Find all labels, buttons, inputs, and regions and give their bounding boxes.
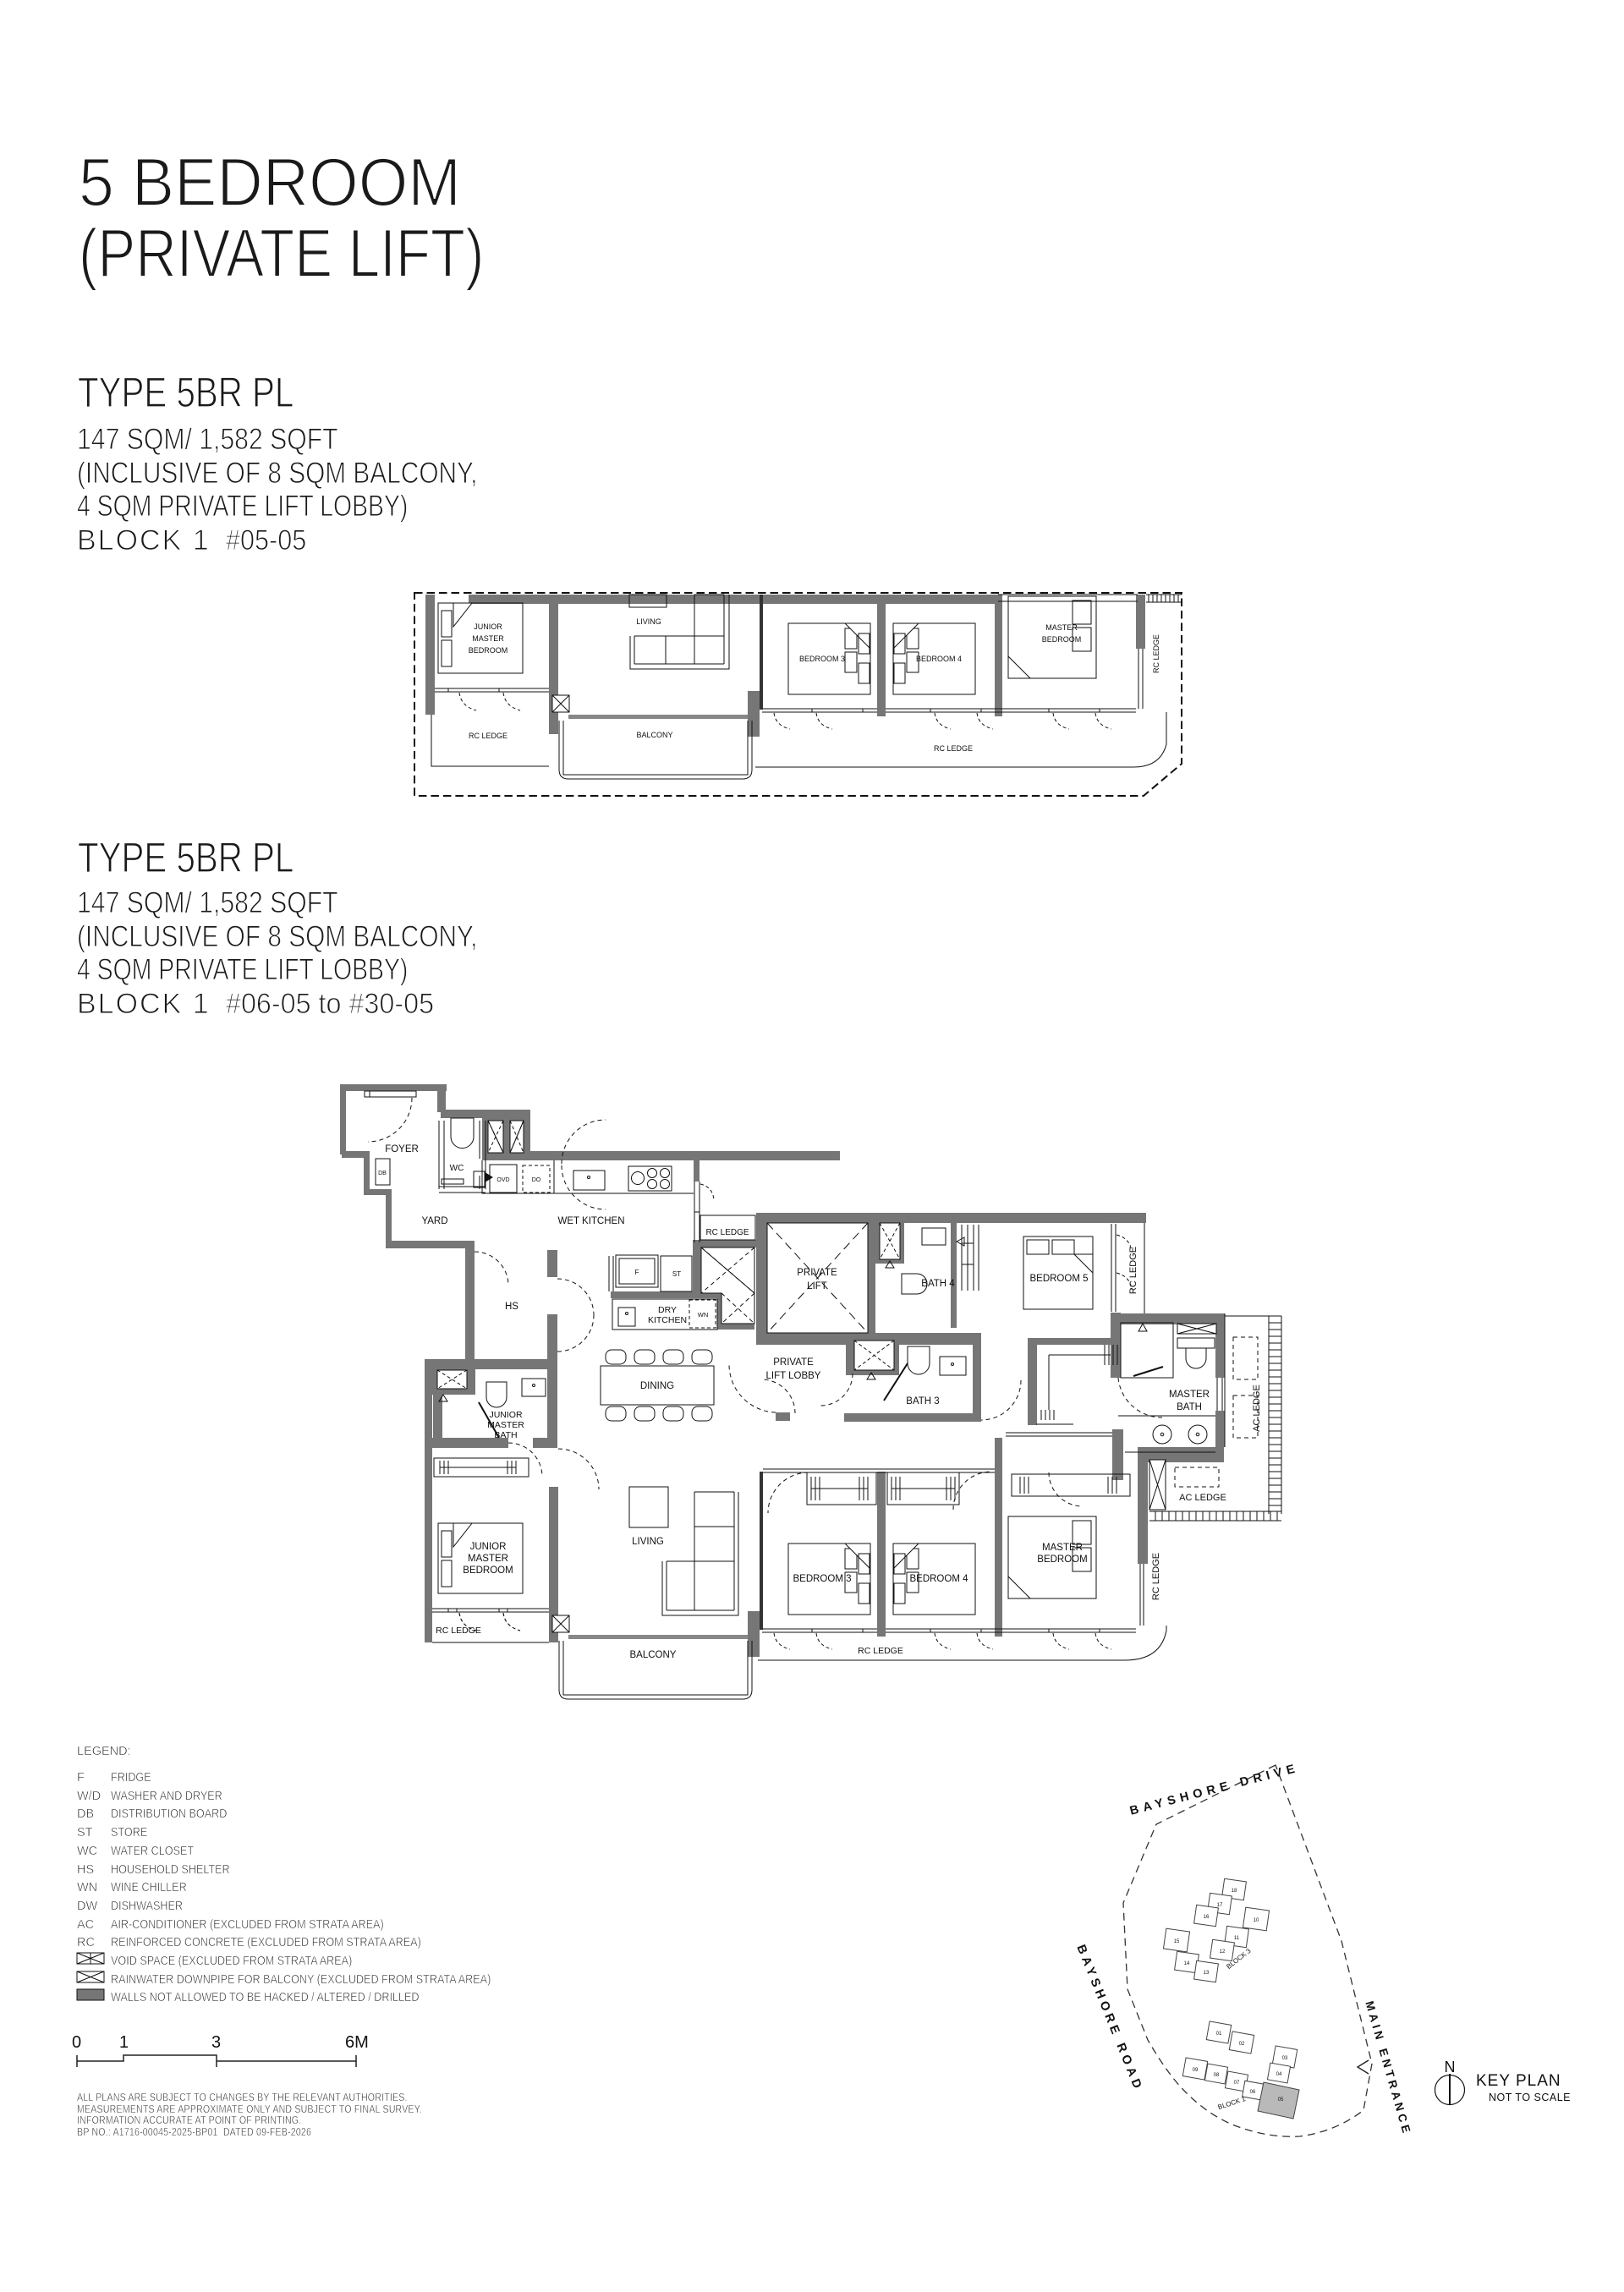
svg-text:17: 17 xyxy=(1217,1903,1223,1908)
svg-text:DRY: DRY xyxy=(658,1305,677,1315)
svg-text:PRIVATE: PRIVATE xyxy=(773,1357,814,1368)
svg-text:JUNIOR: JUNIOR xyxy=(474,622,502,631)
svg-text:BEDROOM 5: BEDROOM 5 xyxy=(1029,1274,1088,1284)
svg-text:05: 05 xyxy=(1278,2097,1284,2103)
svg-text:04: 04 xyxy=(1276,2072,1282,2077)
svg-text:06: 06 xyxy=(1250,2090,1256,2095)
svg-text:FOYER: FOYER xyxy=(385,1144,419,1154)
svg-text:BATH 3: BATH 3 xyxy=(906,1396,939,1406)
svg-text:RC LEDGE: RC LEDGE xyxy=(1128,1247,1138,1294)
svg-text:N: N xyxy=(1445,2059,1456,2075)
svg-text:WN: WN xyxy=(698,1311,709,1319)
svg-text:BLOCK 1: BLOCK 1 xyxy=(1217,2095,1247,2111)
svg-text:JUNIOR: JUNIOR xyxy=(470,1542,507,1552)
svg-text:BEDROOM: BEDROOM xyxy=(463,1565,513,1576)
svg-text:07: 07 xyxy=(1234,2081,1240,2086)
svg-text:BEDROOM: BEDROOM xyxy=(1042,635,1082,644)
svg-text:DB: DB xyxy=(378,1171,387,1176)
svg-text:KEY PLAN: KEY PLAN xyxy=(1476,2072,1561,2090)
svg-text:JUNIOR: JUNIOR xyxy=(489,1410,523,1420)
svg-text:BALCONY: BALCONY xyxy=(630,1650,677,1660)
svg-text:BATH: BATH xyxy=(1177,1402,1202,1412)
svg-text:3: 3 xyxy=(211,2033,221,2052)
svg-text:WET KITCHEN: WET KITCHEN xyxy=(557,1216,624,1226)
svg-text:BEDROOM 3: BEDROOM 3 xyxy=(799,655,845,663)
svg-text:RC LEDGE: RC LEDGE xyxy=(436,1626,481,1636)
svg-text:RC LEDGE: RC LEDGE xyxy=(705,1228,749,1237)
svg-text:MASTER: MASTER xyxy=(1042,1543,1083,1553)
svg-text:ST: ST xyxy=(672,1270,681,1278)
svg-text:LIVING: LIVING xyxy=(636,617,661,626)
svg-text:1: 1 xyxy=(119,2033,129,2052)
svg-text:MASTER: MASTER xyxy=(472,634,504,643)
svg-text:HS: HS xyxy=(505,1302,518,1312)
svg-text:BAYSHORE DRIVE: BAYSHORE DRIVE xyxy=(1128,1762,1301,1818)
svg-text:MASTER: MASTER xyxy=(468,1554,508,1564)
svg-text:BEDROOM: BEDROOM xyxy=(469,646,508,655)
svg-text:WC: WC xyxy=(450,1164,464,1173)
svg-text:08: 08 xyxy=(1214,2073,1220,2078)
svg-text:YARD: YARD xyxy=(421,1216,447,1226)
svg-text:LIFT LOBBY: LIFT LOBBY xyxy=(766,1371,821,1381)
svg-text:RC LEDGE: RC LEDGE xyxy=(469,732,507,740)
svg-text:BATH 4: BATH 4 xyxy=(921,1279,955,1289)
svg-text:RC LEDGE: RC LEDGE xyxy=(1151,1553,1161,1600)
svg-text:12: 12 xyxy=(1220,1949,1226,1955)
svg-text:6M: 6M xyxy=(345,2033,369,2052)
svg-text:15: 15 xyxy=(1174,1939,1180,1944)
svg-text:BAYSHORE ROAD: BAYSHORE ROAD xyxy=(1073,1943,1145,2094)
svg-text:BATH: BATH xyxy=(494,1430,517,1440)
svg-text:KITCHEN: KITCHEN xyxy=(648,1315,687,1325)
svg-text:BEDROOM 3: BEDROOM 3 xyxy=(793,1574,851,1584)
svg-text:10: 10 xyxy=(1254,1918,1259,1923)
svg-text:0: 0 xyxy=(72,2033,81,2052)
svg-text:MASTER: MASTER xyxy=(1045,623,1078,632)
svg-text:11: 11 xyxy=(1234,1936,1240,1941)
svg-text:DINING: DINING xyxy=(640,1381,674,1391)
svg-text:MASTER: MASTER xyxy=(1169,1390,1210,1400)
svg-text:MASTER: MASTER xyxy=(487,1420,524,1430)
svg-text:LIVING: LIVING xyxy=(632,1537,664,1547)
svg-text:BALCONY: BALCONY xyxy=(636,731,672,739)
svg-text:NOT TO SCALE: NOT TO SCALE xyxy=(1489,2092,1571,2103)
svg-text:13: 13 xyxy=(1204,1971,1210,1976)
svg-text:18: 18 xyxy=(1232,1889,1237,1894)
svg-text:RC LEDGE: RC LEDGE xyxy=(1152,634,1160,673)
svg-text:14: 14 xyxy=(1184,1961,1190,1966)
svg-text:BEDROOM: BEDROOM xyxy=(1037,1555,1087,1565)
svg-text:PRIVATE: PRIVATE xyxy=(797,1268,837,1278)
svg-text:02: 02 xyxy=(1239,2042,1245,2047)
svg-text:LIFT: LIFT xyxy=(807,1281,827,1291)
svg-text:F: F xyxy=(635,1269,639,1276)
svg-text:AC LEDGE: AC LEDGE xyxy=(1179,1493,1226,1503)
svg-text:OVD: OVD xyxy=(497,1177,509,1183)
svg-text:01: 01 xyxy=(1216,2032,1222,2037)
svg-text:03: 03 xyxy=(1282,2056,1288,2061)
svg-text:BEDROOM 4: BEDROOM 4 xyxy=(909,1574,968,1584)
svg-text:16: 16 xyxy=(1204,1915,1210,1920)
svg-text:BEDROOM 4: BEDROOM 4 xyxy=(916,655,962,663)
svg-text:AC LEDGE: AC LEDGE xyxy=(1252,1385,1262,1432)
svg-text:RC LEDGE: RC LEDGE xyxy=(858,1646,903,1656)
svg-text:RC LEDGE: RC LEDGE xyxy=(934,744,973,753)
svg-text:09: 09 xyxy=(1193,2068,1199,2073)
svg-text:DO: DO xyxy=(532,1177,541,1183)
